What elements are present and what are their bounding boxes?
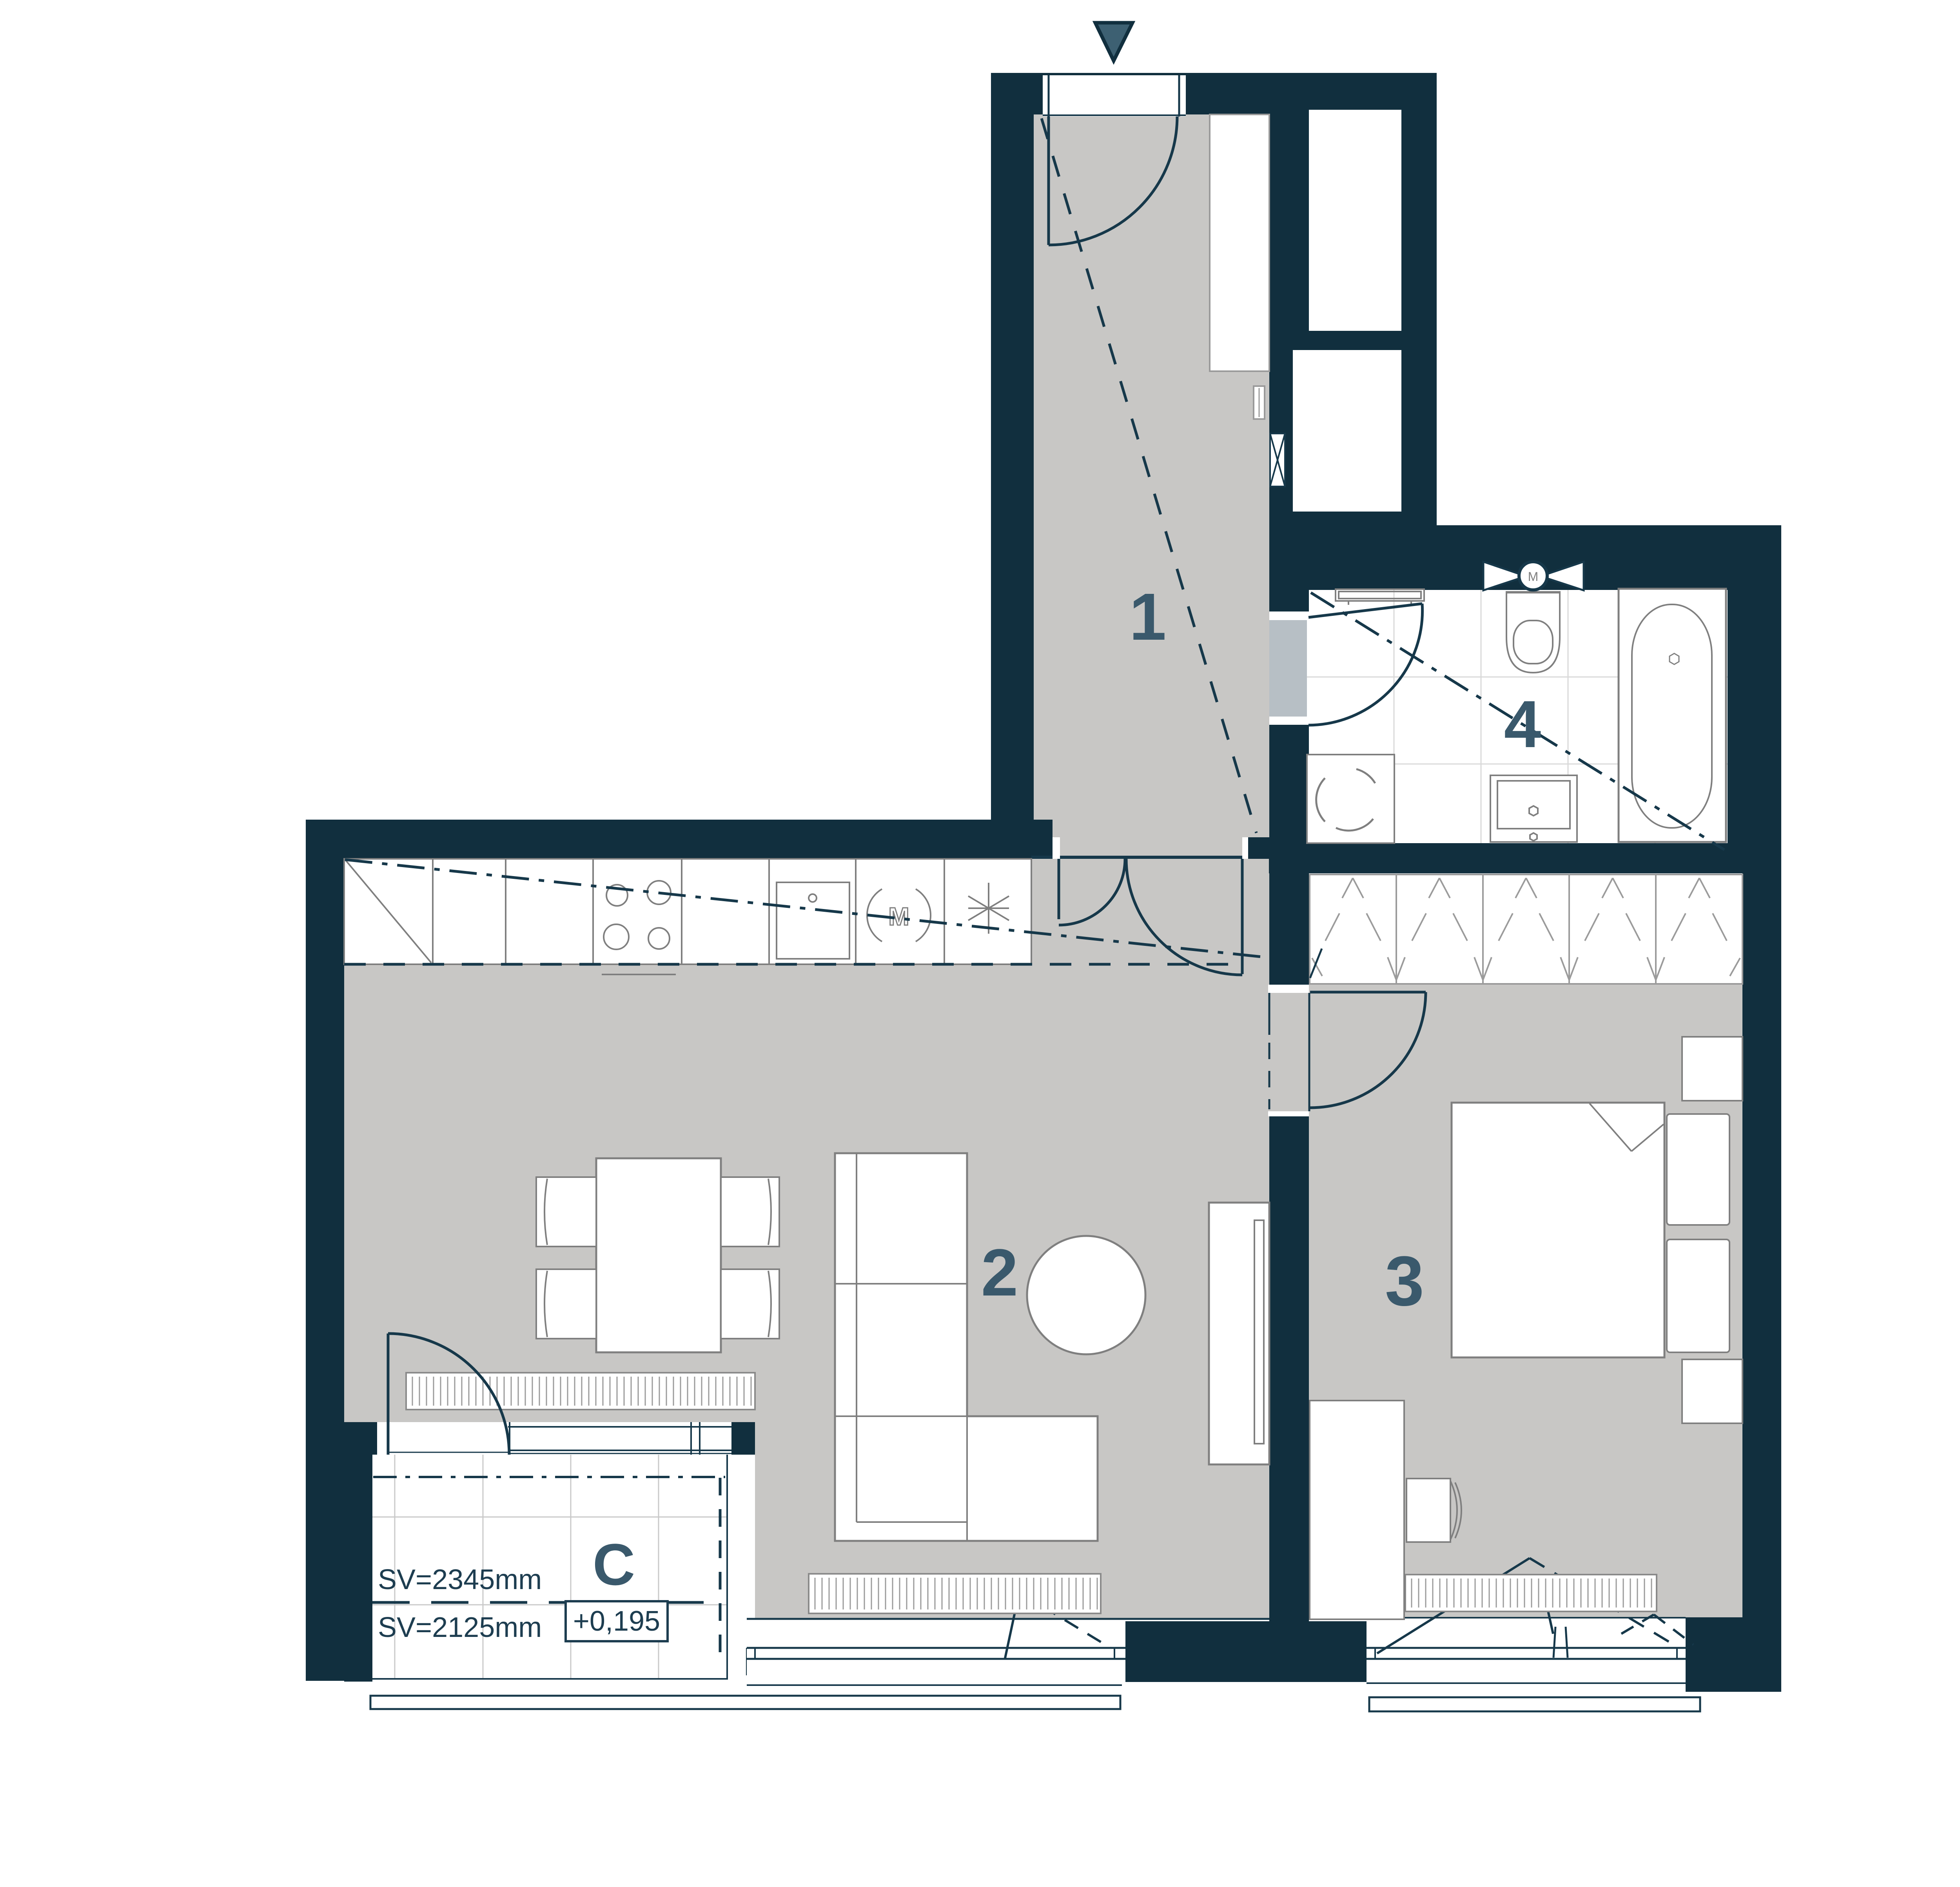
svg-text:M: M: [1528, 570, 1539, 584]
svg-text:SV=2345mm: SV=2345mm: [378, 1564, 542, 1595]
svg-text:+0,195: +0,195: [573, 1606, 660, 1637]
svg-text:C: C: [593, 1531, 635, 1597]
svg-text:3: 3: [1385, 1242, 1424, 1321]
svg-text:1: 1: [1129, 580, 1167, 654]
svg-text:2: 2: [981, 1236, 1018, 1310]
svg-text:4: 4: [1504, 687, 1541, 762]
svg-text:SV=2125mm: SV=2125mm: [378, 1612, 542, 1643]
